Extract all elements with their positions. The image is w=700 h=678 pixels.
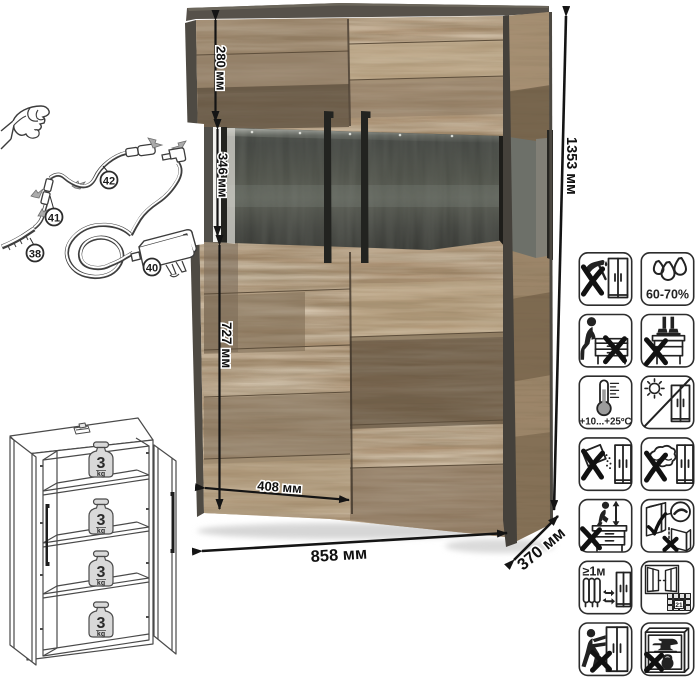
svg-text:42: 42 bbox=[103, 176, 115, 188]
svg-text:kg: kg bbox=[97, 580, 105, 587]
svg-text:38: 38 bbox=[29, 249, 41, 261]
svg-text:40: 40 bbox=[146, 263, 158, 275]
svg-text:3: 3 bbox=[97, 512, 106, 529]
svg-text:60-70%: 60-70% bbox=[646, 288, 689, 302]
svg-text:kg: kg bbox=[97, 471, 105, 478]
svg-text:408 мм: 408 мм bbox=[257, 478, 302, 496]
svg-text:3: 3 bbox=[97, 564, 106, 581]
svg-text:41: 41 bbox=[48, 213, 60, 225]
svg-text:21: 21 bbox=[675, 602, 683, 609]
svg-text:858 мм: 858 мм bbox=[310, 545, 368, 566]
svg-text:727 мм: 727 мм bbox=[219, 322, 234, 368]
svg-text:280 мм: 280 мм bbox=[214, 46, 229, 91]
svg-text:3: 3 bbox=[97, 615, 106, 632]
svg-text:≥1м: ≥1м bbox=[583, 565, 606, 579]
svg-text:kg: kg bbox=[97, 528, 105, 535]
svg-text:346 мм: 346 мм bbox=[216, 153, 231, 198]
svg-text:1353 мм: 1353 мм bbox=[563, 137, 579, 195]
svg-text:3: 3 bbox=[97, 455, 106, 472]
svg-text:kg: kg bbox=[97, 631, 105, 638]
svg-text:+10...+25ºC: +10...+25ºC bbox=[579, 416, 631, 427]
